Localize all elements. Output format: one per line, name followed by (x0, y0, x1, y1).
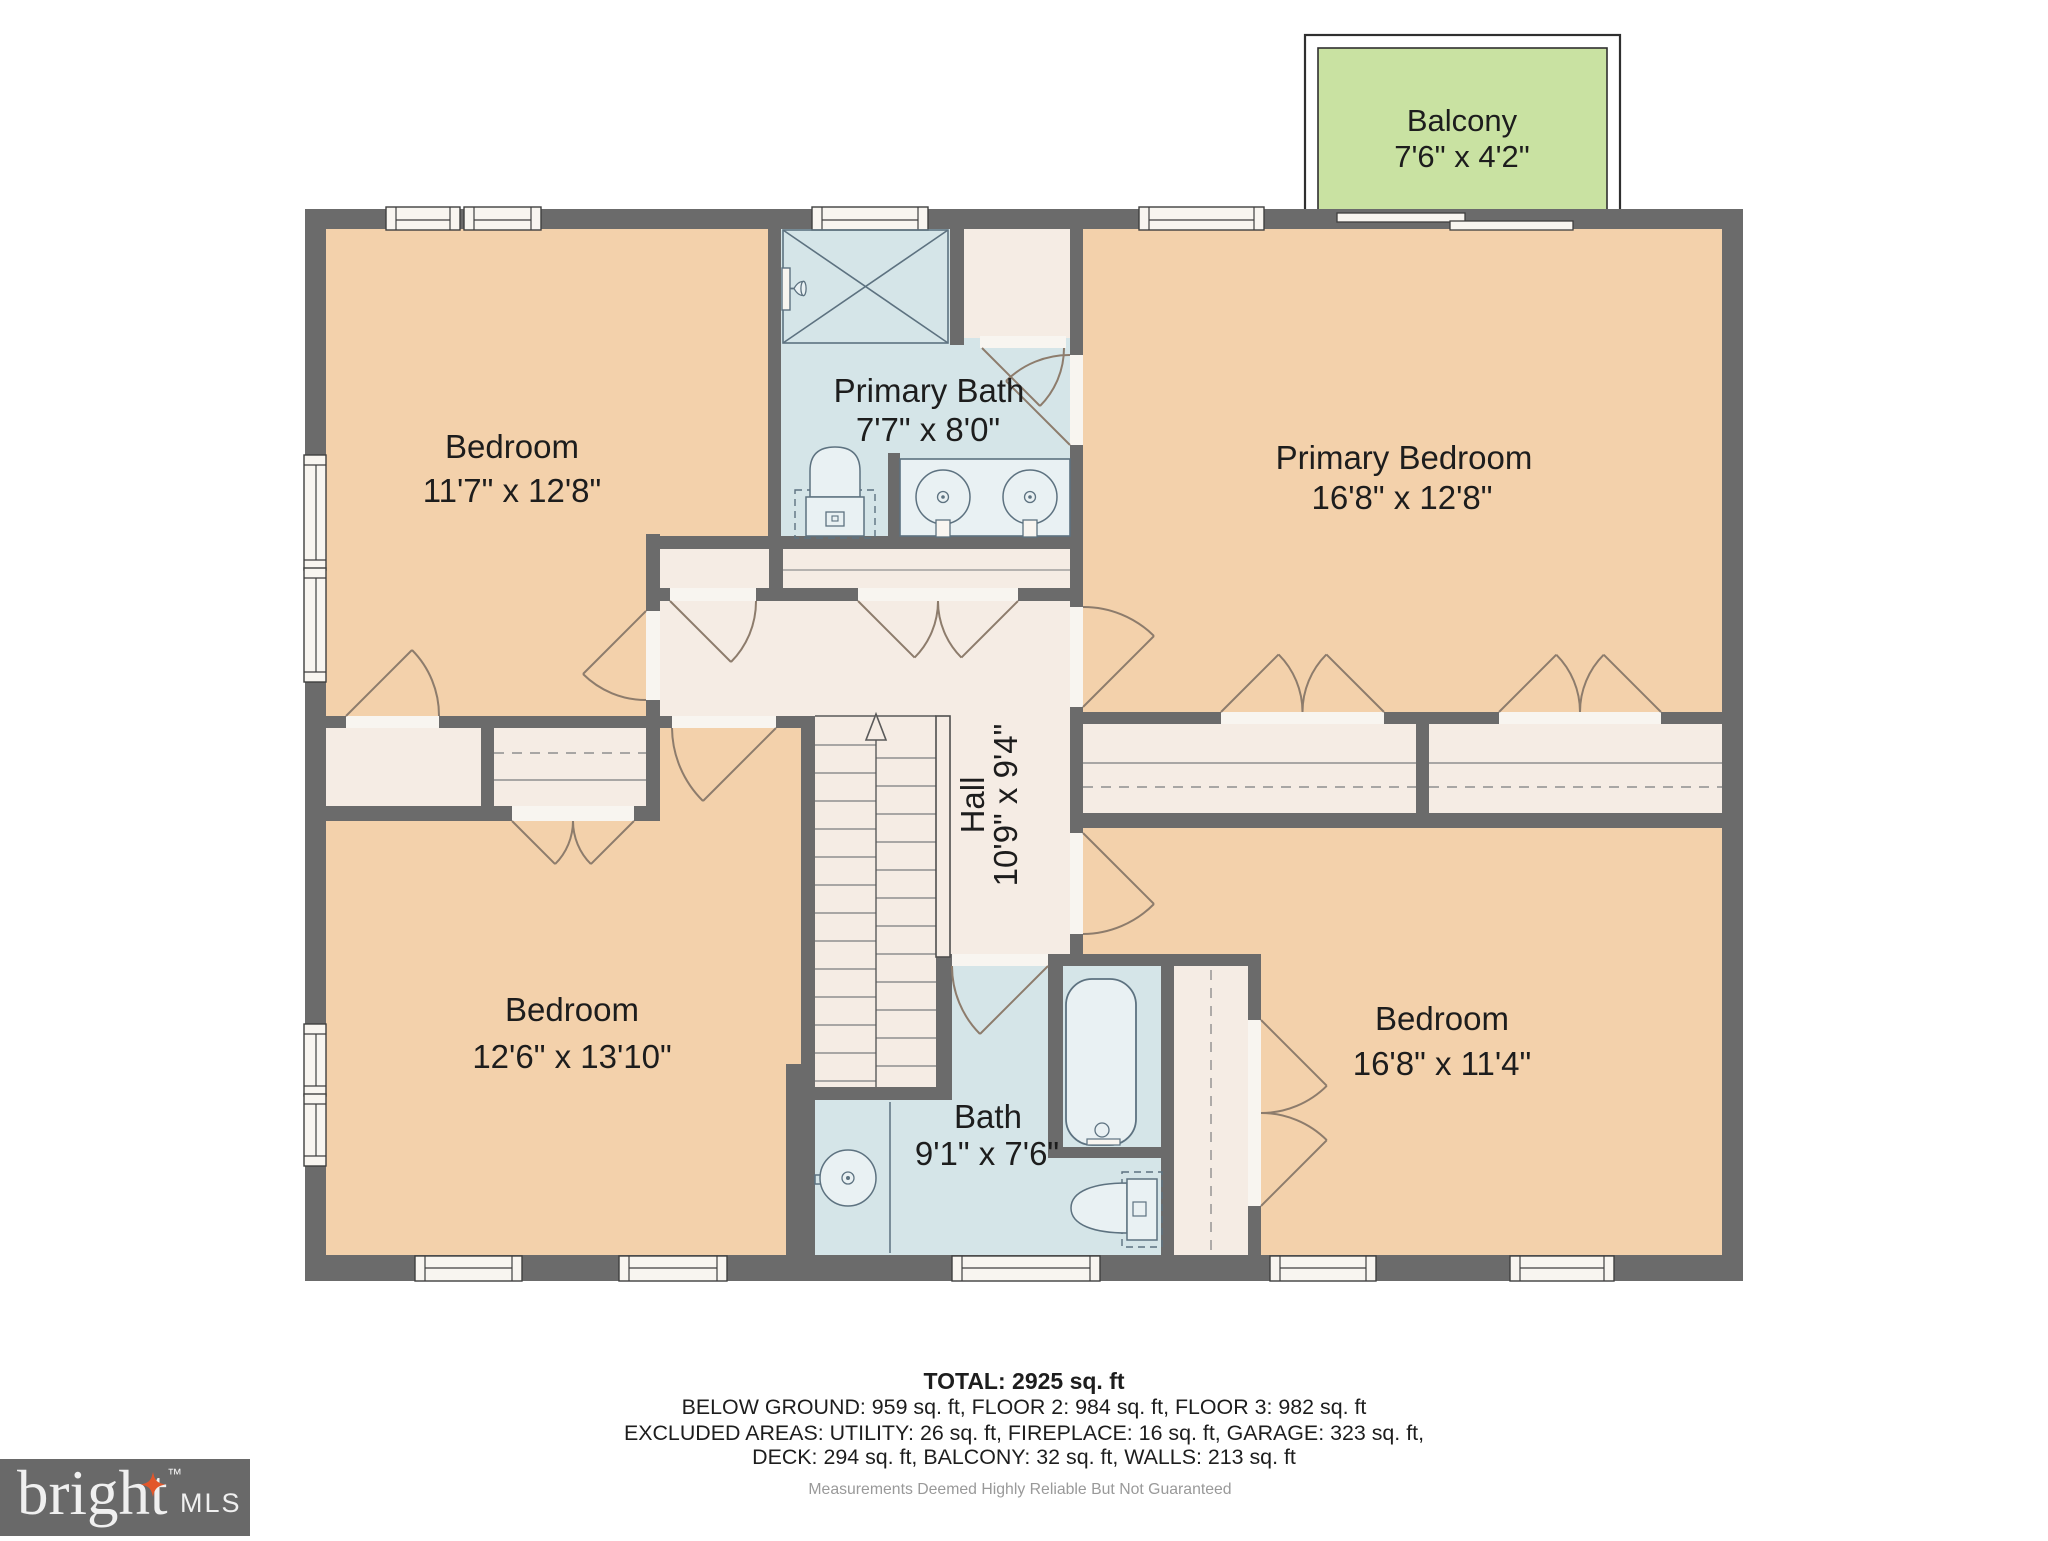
svg-text:7'6" x 4'2": 7'6" x 4'2" (1394, 139, 1530, 174)
svg-text:16'8" x 12'8": 16'8" x 12'8" (1312, 479, 1493, 516)
svg-text:Bath: Bath (954, 1098, 1022, 1135)
svg-text:Primary Bedroom: Primary Bedroom (1276, 439, 1533, 476)
svg-text:EXCLUDED AREAS: UTILITY: 26 sq: EXCLUDED AREAS: UTILITY: 26 sq. ft, FIRE… (624, 1421, 1424, 1445)
svg-text:Bedroom: Bedroom (1375, 1000, 1509, 1037)
svg-text:Bedroom: Bedroom (445, 428, 579, 465)
svg-text:BELOW GROUND: 959 sq. ft, FLOO: BELOW GROUND: 959 sq. ft, FLOOR 2: 984 s… (682, 1395, 1367, 1419)
svg-text:12'6" x 13'10": 12'6" x 13'10" (472, 1038, 671, 1075)
svg-text:Balcony: Balcony (1407, 103, 1518, 138)
svg-text:MLS: MLS (180, 1488, 242, 1518)
svg-text:Measurements Deemed Highly Rel: Measurements Deemed Highly Reliable But … (808, 1481, 1231, 1498)
svg-text:16'8" x 11'4": 16'8" x 11'4" (1353, 1045, 1532, 1082)
svg-text:™: ™ (167, 1466, 182, 1483)
svg-text:bright: bright (17, 1458, 168, 1528)
svg-text:7'7" x 8'0": 7'7" x 8'0" (856, 411, 1000, 448)
svg-text:Bedroom: Bedroom (505, 991, 639, 1028)
svg-text:TOTAL: 2925 sq. ft: TOTAL: 2925 sq. ft (923, 1368, 1124, 1394)
svg-text:10'9" x 9'4": 10'9" x 9'4" (987, 724, 1024, 887)
svg-text:Primary Bath: Primary Bath (834, 372, 1025, 409)
svg-text:DECK: 294 sq. ft, BALCONY: 32: DECK: 294 sq. ft, BALCONY: 32 sq. ft, WA… (752, 1445, 1296, 1469)
svg-text:Hall: Hall (954, 777, 991, 834)
svg-text:9'1" x 7'6": 9'1" x 7'6" (915, 1135, 1059, 1172)
svg-text:11'7" x 12'8": 11'7" x 12'8" (423, 472, 602, 509)
